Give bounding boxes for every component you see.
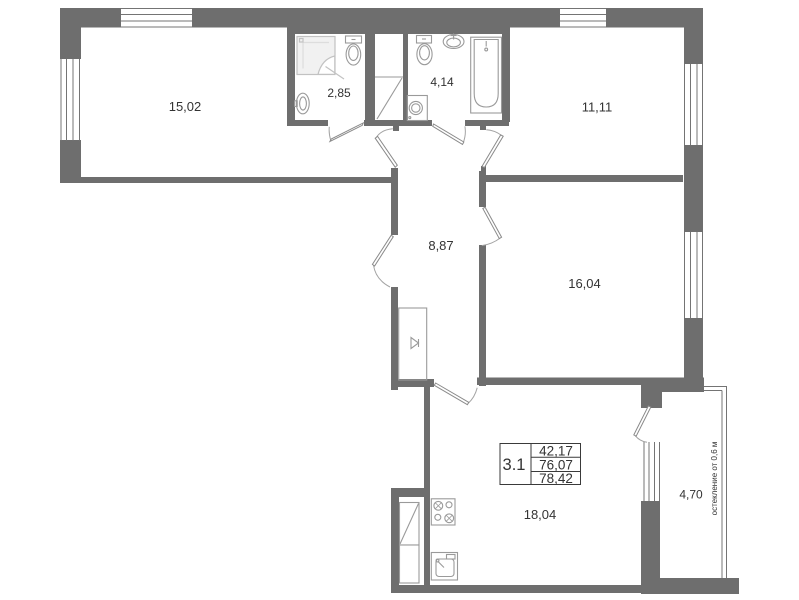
svg-text:42,17: 42,17 — [539, 443, 573, 458]
svg-text:2,85: 2,85 — [327, 86, 351, 100]
svg-text:11,11: 11,11 — [582, 100, 613, 115]
svg-text:4,14: 4,14 — [430, 75, 454, 89]
svg-text:остекление от 0,6 м: остекление от 0,6 м — [710, 442, 719, 516]
svg-text:4,70: 4,70 — [679, 488, 703, 502]
svg-text:16,04: 16,04 — [568, 276, 601, 291]
svg-text:76,07: 76,07 — [539, 457, 573, 472]
svg-text:8,87: 8,87 — [428, 238, 453, 253]
svg-text:3.1: 3.1 — [503, 456, 526, 474]
svg-text:18,04: 18,04 — [524, 507, 557, 522]
svg-text:15,02: 15,02 — [169, 99, 202, 114]
svg-text:78,42: 78,42 — [539, 471, 573, 486]
